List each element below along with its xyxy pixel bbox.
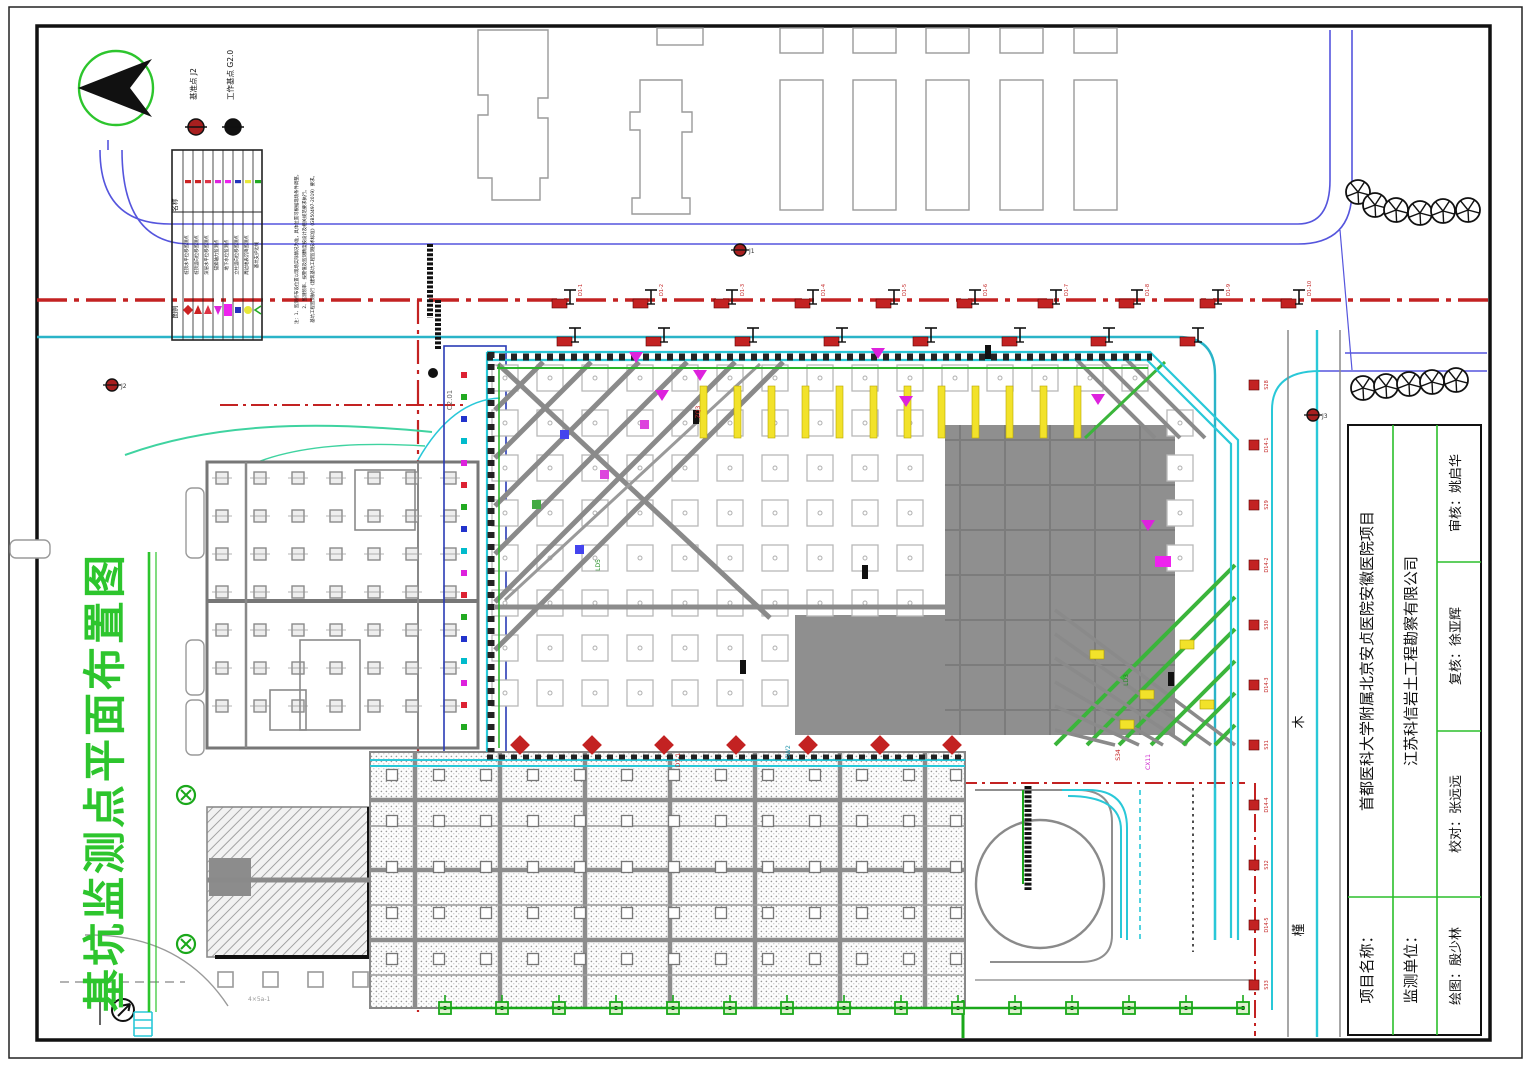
point-code-label: ZQ3 (695, 405, 702, 418)
datum-point-label: 基准点 J2 (188, 68, 198, 100)
legend-item-label: 桩顶水平位移监测点 (183, 235, 190, 275)
tree-icon (1363, 193, 1387, 217)
marker-label: S32 (1264, 860, 1270, 870)
legend-note-line: 注：1、监测点布设位置以现场实际情况为准，具体位置可根据现场条件调整。 (293, 172, 300, 324)
east-marker (1249, 500, 1259, 510)
east-marker (1249, 380, 1259, 390)
checker-field: 复核：徐亚辉 (1449, 607, 1464, 685)
benchmark-label: J2 (120, 383, 127, 390)
marker-label: D1-2 (659, 284, 665, 296)
tree-icon (1397, 372, 1421, 396)
footing-square (353, 972, 368, 987)
marker-label: D14-1 (1264, 437, 1270, 452)
marker-label: D1-8 (1145, 284, 1151, 296)
anchor-bar (768, 386, 775, 438)
marker-label: D1-6 (983, 284, 989, 296)
marker-label: S33 (1264, 980, 1270, 990)
marker-label: D14-2 (1264, 557, 1270, 572)
anchor-bar (1040, 386, 1047, 438)
marker-label: D14-5 (1264, 917, 1270, 932)
benchmark-label: J1 (748, 248, 755, 255)
tree-icon (1456, 198, 1480, 222)
east-marker (1249, 620, 1259, 630)
marker-label: D1-5 (902, 284, 908, 296)
south-building (370, 752, 965, 1008)
project-name-label: 项目名称： (1358, 928, 1376, 1003)
anchor-bar (938, 386, 945, 438)
tree-icon (1408, 201, 1432, 225)
benchmark-label: J3 (1321, 413, 1328, 420)
project-name: 首都医科大学附属北京安贞医院安徽医院项目 (1358, 511, 1376, 811)
legend-note-line: 基坑工程监测执行《建筑基坑工程监测技术标准》（GB50497-2019）要求。 (309, 173, 316, 323)
legend-item-label: 地下水位监测点 (223, 239, 230, 270)
anchor-bar (802, 386, 809, 438)
legend-item-label: 周边地表沉降监测点 (243, 235, 250, 275)
anchor-bar (1006, 386, 1013, 438)
monitoring-unit-name: 江苏科信岩土工程勘察有限公司 (1402, 556, 1420, 766)
point-code-label: SW2 (785, 745, 792, 759)
east-marker (1249, 740, 1259, 750)
working-point-label: 工作基点 G2.0 (225, 50, 235, 100)
drawing-sheet: D1-1D1-2D1-3D1-4D1-5D1-6D1-7D1-8D1-9D1-1… (0, 0, 1531, 1066)
legend-item-label: 锚索轴力监测点 (213, 239, 220, 270)
reviewer-field: 审核：姚启华 (1449, 454, 1464, 532)
point-code-label: CX11 (1145, 754, 1152, 770)
road-name-char-1: 木 (1292, 715, 1307, 728)
east-marker (1249, 980, 1259, 990)
legend-header-symbol: 图例 (170, 306, 179, 319)
anchor-bar (972, 386, 979, 438)
anchor-bar (1074, 386, 1081, 438)
marker-label: D1-9 (1226, 284, 1232, 296)
tree-icon (1374, 374, 1398, 398)
south-building-fill (370, 752, 965, 1008)
legend-note-line: 2、监测频率、报警值及监测精度按设计及相关规范要求执行。 (301, 187, 308, 308)
point-code-label: LD3 (1123, 674, 1130, 686)
tree-icon (1444, 368, 1468, 392)
tree-icon (1384, 198, 1408, 222)
legend-header-name: 名称 (170, 198, 179, 212)
anchor-bar (734, 386, 741, 438)
marker-label: D1-1 (578, 284, 584, 296)
marker-label: S30 (1264, 620, 1270, 630)
building-note: 4×5a-1 (248, 996, 271, 1003)
anchor-bar (904, 386, 911, 438)
point-code-label: S34 (1115, 749, 1122, 761)
legend-item-label: 深层水平位移监测点 (203, 235, 210, 275)
tree-icon (1351, 376, 1375, 400)
footing-square (308, 972, 323, 987)
road-name-char-2: 槿 (1292, 923, 1307, 936)
marker-label: S31 (1264, 740, 1270, 750)
legend-item-label: 桩顶竖向位移监测点 (193, 235, 200, 275)
marker-label: S29 (1264, 500, 1270, 510)
tree-icon (1431, 199, 1455, 223)
tree-icon (1420, 370, 1444, 394)
legend-item-label: 基坑支护边线 (253, 241, 260, 268)
anchor-bar (836, 386, 843, 438)
point-code-label: LD5 (595, 559, 602, 571)
wall-section-label: C2.01 (446, 390, 454, 410)
marker-label: D1-10 (1307, 281, 1313, 296)
proofreader-field: 校对：张远远 (1448, 775, 1464, 853)
footing-square (263, 972, 278, 987)
anchor-bar (870, 386, 877, 438)
page-title: 基坑监测点平面布置图 (81, 552, 131, 1012)
marker-label: D1-7 (1064, 284, 1070, 296)
east-marker (1249, 560, 1259, 570)
drafter-field: 绘图：殷少林 (1449, 927, 1464, 1005)
east-marker (1249, 860, 1259, 870)
marker-label: S28 (1264, 380, 1270, 390)
marker-label: D1-3 (740, 284, 746, 296)
footing-square (218, 972, 233, 987)
marker-label: D14-4 (1264, 797, 1270, 812)
deep-zone-fill (795, 615, 945, 735)
title-block: 首都医科大学附属北京安贞医院安徽医院项目 项目名称： 江苏科信岩土工程勘察有限公… (1348, 425, 1481, 1035)
water-level-marker (1155, 556, 1171, 567)
legend-item-label: 立柱竖向位移监测点 (233, 235, 240, 275)
monitoring-unit-label: 监测单位： (1402, 928, 1420, 1003)
east-marker (1249, 680, 1259, 690)
marker-label: D1-4 (821, 284, 827, 296)
east-marker (1249, 440, 1259, 450)
east-marker (1249, 800, 1259, 810)
marker-label: D14-3 (1264, 677, 1270, 692)
plan-svg: D1-1D1-2D1-3D1-4D1-5D1-6D1-7D1-8D1-9D1-1… (0, 0, 1531, 1066)
east-marker (1249, 920, 1259, 930)
point-code-label: D7-1 (675, 753, 682, 768)
